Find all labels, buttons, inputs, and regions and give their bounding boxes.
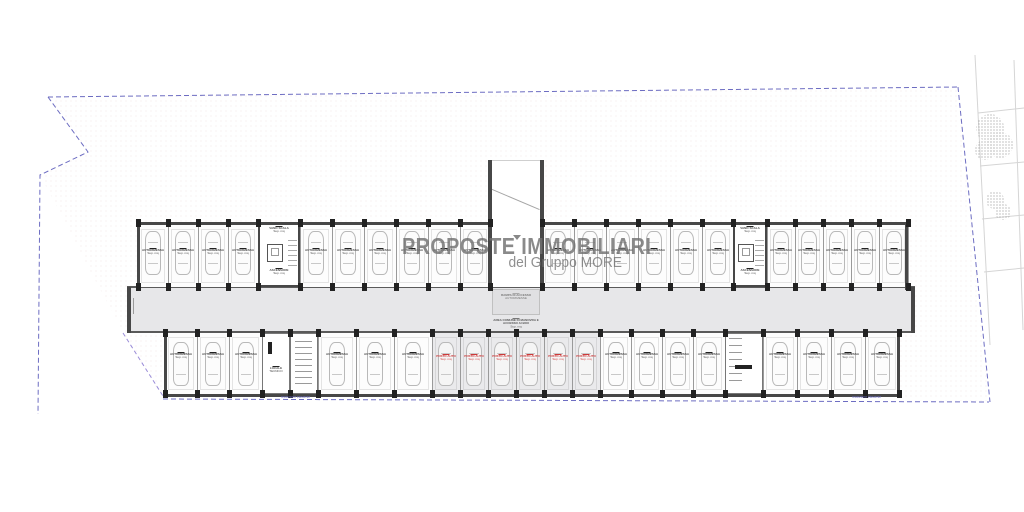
pillar — [829, 329, 834, 337]
pillar — [542, 329, 547, 337]
car-windshield-line — [208, 242, 218, 243]
equipment-bar — [735, 365, 752, 369]
stall-divider — [460, 333, 461, 394]
car-rear-line — [343, 263, 353, 264]
pillar — [488, 283, 493, 291]
pillar — [540, 283, 545, 291]
car-windshield-line — [776, 242, 786, 243]
stall-divider — [396, 225, 397, 287]
pillar — [723, 390, 728, 398]
wall — [127, 287, 131, 333]
car-symbol — [840, 342, 856, 386]
pillar — [795, 390, 800, 398]
pillar — [227, 329, 232, 337]
boundary-note-left: recinzione esistente — [281, 396, 310, 399]
wall — [137, 222, 140, 290]
pillar — [636, 283, 641, 291]
car-rear-line — [332, 374, 342, 375]
stall-label: AUTORIMESSASup. mq — [688, 248, 748, 255]
pillar — [793, 219, 798, 227]
pillar — [260, 329, 265, 337]
stall-divider — [693, 333, 694, 394]
stall-divider — [572, 333, 573, 394]
pillar — [226, 219, 231, 227]
car-symbol — [367, 342, 383, 386]
pillar — [394, 283, 399, 291]
stall-divider — [544, 333, 545, 394]
car-windshield-line — [681, 242, 691, 243]
car-symbol — [550, 342, 566, 386]
car-symbol — [639, 342, 655, 386]
pillar — [486, 329, 491, 337]
car-symbol — [238, 342, 254, 386]
pillar — [863, 329, 868, 337]
label-line2: Sup. mq — [213, 252, 273, 255]
car-symbol — [405, 342, 421, 386]
pillar — [488, 219, 493, 227]
pillar — [330, 283, 335, 291]
pillar — [793, 283, 798, 291]
car-rear-line — [370, 374, 380, 375]
pillar — [572, 219, 577, 227]
car-symbol — [806, 342, 822, 386]
wall — [164, 333, 167, 397]
stall-label: RAMPA DI ACCESSOAUTORIMESSE — [486, 293, 546, 300]
car-rear-line — [860, 263, 870, 264]
stall-divider — [228, 225, 229, 287]
car-rear-line — [642, 374, 652, 375]
car-rear-line — [469, 374, 479, 375]
car-symbol — [608, 342, 624, 386]
stall-label: AUTORIMESSASup. mq — [216, 352, 276, 359]
pillar — [430, 390, 435, 398]
car-symbol — [874, 342, 890, 386]
ramp-threshold-line — [492, 160, 540, 161]
stall-label: AUTORIMESSASup. mq — [679, 352, 739, 359]
label-line2: Sup. mq — [249, 230, 309, 233]
car-windshield-line — [804, 242, 814, 243]
pillar — [256, 283, 261, 291]
pillar — [260, 390, 265, 398]
car-rear-line — [439, 263, 449, 264]
schedule-text-line — [295, 347, 312, 348]
label-line2: Sup. mq — [688, 252, 748, 255]
floor-plan-page: VANO SCALASup. mqASCENSORESup. mqVANO SC… — [0, 0, 1024, 512]
pillar — [298, 283, 303, 291]
car-rear-line — [408, 374, 418, 375]
technical-room — [262, 333, 290, 394]
watermark-line2: del Gruppo MORE — [502, 254, 622, 271]
pillar — [354, 329, 359, 337]
pillar — [668, 283, 673, 291]
stair-tread — [288, 240, 297, 241]
label-line2: AUTORIMESSE — [486, 297, 546, 300]
car-rear-line — [775, 374, 785, 375]
car-symbol — [205, 342, 221, 386]
pillar — [897, 390, 902, 398]
pillar — [514, 390, 519, 398]
car-rear-line — [832, 263, 842, 264]
car-rear-line — [649, 263, 659, 264]
pillar — [227, 390, 232, 398]
stall-divider — [865, 333, 866, 394]
label-line2: Sup. mq — [556, 358, 616, 361]
wall — [544, 222, 909, 225]
stall-divider — [831, 333, 832, 394]
car-rear-line — [375, 263, 385, 264]
stair-tread — [288, 265, 297, 266]
car-symbol — [466, 342, 482, 386]
wall — [911, 287, 915, 333]
pillar — [821, 219, 826, 227]
pillar — [570, 329, 575, 337]
stall-label: ASCENSORESup. mq — [249, 268, 309, 275]
car-rear-line — [441, 374, 451, 375]
pillar — [668, 219, 673, 227]
car-rear-line — [681, 263, 691, 264]
car-symbol — [578, 342, 594, 386]
pillar — [458, 329, 463, 337]
schedule-text-line — [295, 341, 312, 342]
schedule-text-line — [729, 373, 742, 374]
pillar — [765, 283, 770, 291]
pillar — [392, 329, 397, 337]
car-rear-line — [809, 374, 819, 375]
car-windshield-line — [375, 242, 385, 243]
stall-divider — [631, 333, 632, 394]
stall-label: AUTORIMESSASup. mq — [213, 248, 273, 255]
stall-divider — [332, 225, 333, 287]
car-rear-line — [407, 263, 417, 264]
car-symbol — [494, 342, 510, 386]
stall-divider — [795, 225, 796, 287]
stall-divider — [662, 333, 663, 394]
car-rear-line — [704, 374, 714, 375]
pillar — [572, 283, 577, 291]
pillar — [629, 390, 634, 398]
pillar — [765, 219, 770, 227]
pillar — [166, 283, 171, 291]
stall-divider — [318, 333, 319, 394]
pillar — [136, 219, 141, 227]
stall-divider — [394, 333, 395, 394]
pillar — [877, 219, 882, 227]
stair-tread — [288, 245, 297, 246]
pillar — [354, 390, 359, 398]
schedule-text-line — [729, 380, 742, 381]
pillar — [392, 390, 397, 398]
stall-divider — [197, 333, 198, 394]
pillar — [316, 390, 321, 398]
car-symbol — [522, 342, 538, 386]
car-windshield-line — [238, 242, 248, 243]
stall-divider — [908, 225, 909, 287]
pillar — [226, 283, 231, 291]
stall-divider — [879, 225, 880, 287]
pillar — [430, 329, 435, 337]
pillar — [394, 219, 399, 227]
pillar — [163, 329, 168, 337]
stall-divider — [516, 333, 517, 394]
car-rear-line — [470, 263, 480, 264]
pillar — [604, 283, 609, 291]
pillar — [906, 219, 911, 227]
pillar — [598, 390, 603, 398]
car-rear-line — [889, 263, 899, 264]
pillar — [163, 390, 168, 398]
pillar — [629, 329, 634, 337]
pillar — [298, 219, 303, 227]
schedule-text-line — [729, 345, 742, 346]
pillar — [426, 283, 431, 291]
stall-divider — [851, 225, 852, 287]
pillar — [821, 283, 826, 291]
pillar — [166, 219, 171, 227]
pillar — [458, 283, 463, 291]
label-line2: Sup. mq — [864, 252, 924, 255]
stair-tread — [755, 265, 764, 266]
pillar — [195, 390, 200, 398]
pillar — [691, 390, 696, 398]
car-windshield-line — [178, 242, 188, 243]
technical-room — [725, 333, 763, 394]
car-symbol — [173, 342, 189, 386]
wall — [137, 222, 490, 225]
schedule-text-line — [295, 371, 312, 372]
pillar — [700, 219, 705, 227]
pillar — [604, 219, 609, 227]
label-line2: Sup. mq — [852, 356, 912, 359]
stall-divider — [823, 225, 824, 287]
pillar — [731, 219, 736, 227]
pillar — [256, 219, 261, 227]
wall — [164, 394, 900, 397]
pillar — [761, 390, 766, 398]
pillar — [849, 283, 854, 291]
car-rear-line — [208, 263, 218, 264]
car-windshield-line — [713, 242, 723, 243]
stair-tread — [755, 245, 764, 246]
car-rear-line — [553, 374, 563, 375]
pillar — [691, 329, 696, 337]
stair-tread — [755, 240, 764, 241]
car-symbol — [438, 342, 454, 386]
pillar — [362, 283, 367, 291]
pillar — [426, 219, 431, 227]
wall — [897, 333, 900, 397]
pillar — [196, 283, 201, 291]
pillar — [731, 283, 736, 291]
stall-label: AUTORIMESSASup. mq — [864, 248, 924, 255]
car-rear-line — [208, 374, 218, 375]
car-rear-line — [238, 263, 248, 264]
technical-room — [290, 333, 318, 394]
car-rear-line — [804, 263, 814, 264]
stall-label: POSTO AUTOSup. mq — [556, 354, 616, 361]
pillar — [316, 329, 321, 337]
pillar — [829, 390, 834, 398]
stall-divider — [670, 225, 671, 287]
label-line2: Sup. mq — [216, 356, 276, 359]
pillar — [330, 219, 335, 227]
stall-divider — [767, 225, 768, 287]
car-rear-line — [673, 374, 683, 375]
car-windshield-line — [343, 242, 353, 243]
schedule-text-line — [729, 338, 742, 339]
pillar — [136, 283, 141, 291]
label-line2: Sup. mq — [720, 272, 780, 275]
car-windshield-line — [311, 242, 321, 243]
stall-label: AUTORIMESSASup. mq — [852, 352, 912, 359]
pillar — [486, 390, 491, 398]
pillar — [598, 329, 603, 337]
car-symbol — [701, 342, 717, 386]
wall — [905, 222, 908, 290]
car-rear-line — [611, 374, 621, 375]
car-rear-line — [525, 374, 535, 375]
schedule-text-line — [295, 383, 312, 384]
car-windshield-line — [860, 242, 870, 243]
pillar — [700, 283, 705, 291]
stair-tread — [288, 260, 297, 261]
pillar — [458, 390, 463, 398]
pillar — [897, 329, 902, 337]
pillar — [906, 283, 911, 291]
pillar — [723, 329, 728, 337]
stair-tread — [755, 260, 764, 261]
stall-label: ASCENSORESup. mq — [720, 268, 780, 275]
car-rear-line — [843, 374, 853, 375]
pillar — [458, 219, 463, 227]
pillar — [795, 329, 800, 337]
car-windshield-line — [832, 242, 842, 243]
car-rear-line — [176, 374, 186, 375]
pillar — [761, 329, 766, 337]
pillar — [540, 219, 545, 227]
schedule-text-line — [295, 377, 312, 378]
car-rear-line — [776, 263, 786, 264]
stall-label: VANO SCALASup. mq — [249, 226, 309, 233]
label-line2: Sup. mq — [720, 230, 780, 233]
car-rear-line — [148, 263, 158, 264]
car-symbol — [772, 342, 788, 386]
pillar — [877, 283, 882, 291]
stall-label: VANO SCALASup. mq — [720, 226, 780, 233]
schedule-text-line — [295, 365, 312, 366]
stall-label: AREA COMUNE DI MANOVRA E ACCESSO AI BOXS… — [486, 318, 546, 328]
label-line2: Sup. mq — [249, 272, 309, 275]
pillar — [196, 219, 201, 227]
pillar — [195, 329, 200, 337]
stall-divider — [229, 333, 230, 394]
stall-divider — [600, 333, 601, 394]
label-line2: Sup. mq — [679, 356, 739, 359]
label-line2: Sup. mq — [486, 325, 546, 328]
stall-divider — [432, 333, 433, 394]
pillar — [542, 390, 547, 398]
car-rear-line — [311, 263, 321, 264]
stall-divider — [797, 333, 798, 394]
stall-divider — [702, 225, 703, 287]
car-rear-line — [497, 374, 507, 375]
boundary-note-right: recinzione esistente — [852, 396, 881, 399]
car-rear-line — [877, 374, 887, 375]
pillar — [288, 329, 293, 337]
stall-divider — [488, 333, 489, 394]
car-rear-line — [581, 374, 591, 375]
stall-divider — [356, 333, 357, 394]
pillar — [362, 219, 367, 227]
pillar — [660, 390, 665, 398]
car-rear-line — [241, 374, 251, 375]
stall-divider — [763, 333, 764, 394]
stall-divider — [364, 225, 365, 287]
pillar — [849, 219, 854, 227]
pillar — [660, 329, 665, 337]
car-windshield-line — [889, 242, 899, 243]
car-rear-line — [178, 263, 188, 264]
car-symbol — [329, 342, 345, 386]
stall-divider — [198, 225, 199, 287]
pillar — [636, 219, 641, 227]
car-windshield-line — [148, 242, 158, 243]
car-rear-line — [713, 263, 723, 264]
corridor-door-icon — [133, 298, 134, 314]
pillar — [514, 329, 519, 337]
stall-divider — [300, 225, 301, 287]
stall-divider — [168, 225, 169, 287]
car-symbol — [670, 342, 686, 386]
pillar — [570, 390, 575, 398]
